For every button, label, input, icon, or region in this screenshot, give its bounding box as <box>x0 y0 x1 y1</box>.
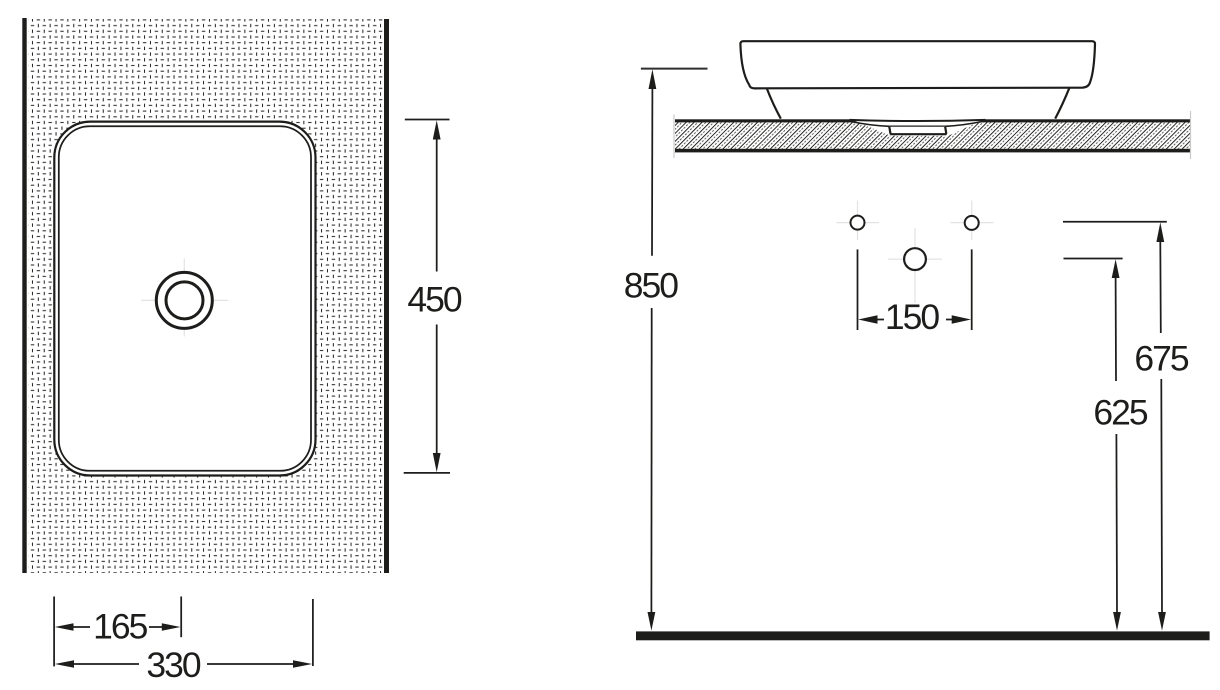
svg-text:625: 625 <box>1093 392 1147 432</box>
svg-text:330: 330 <box>146 645 200 685</box>
svg-text:850: 850 <box>624 265 678 305</box>
svg-text:150: 150 <box>885 297 939 337</box>
svg-text:675: 675 <box>1134 338 1188 378</box>
svg-text:450: 450 <box>407 280 461 320</box>
svg-text:165: 165 <box>93 607 147 647</box>
